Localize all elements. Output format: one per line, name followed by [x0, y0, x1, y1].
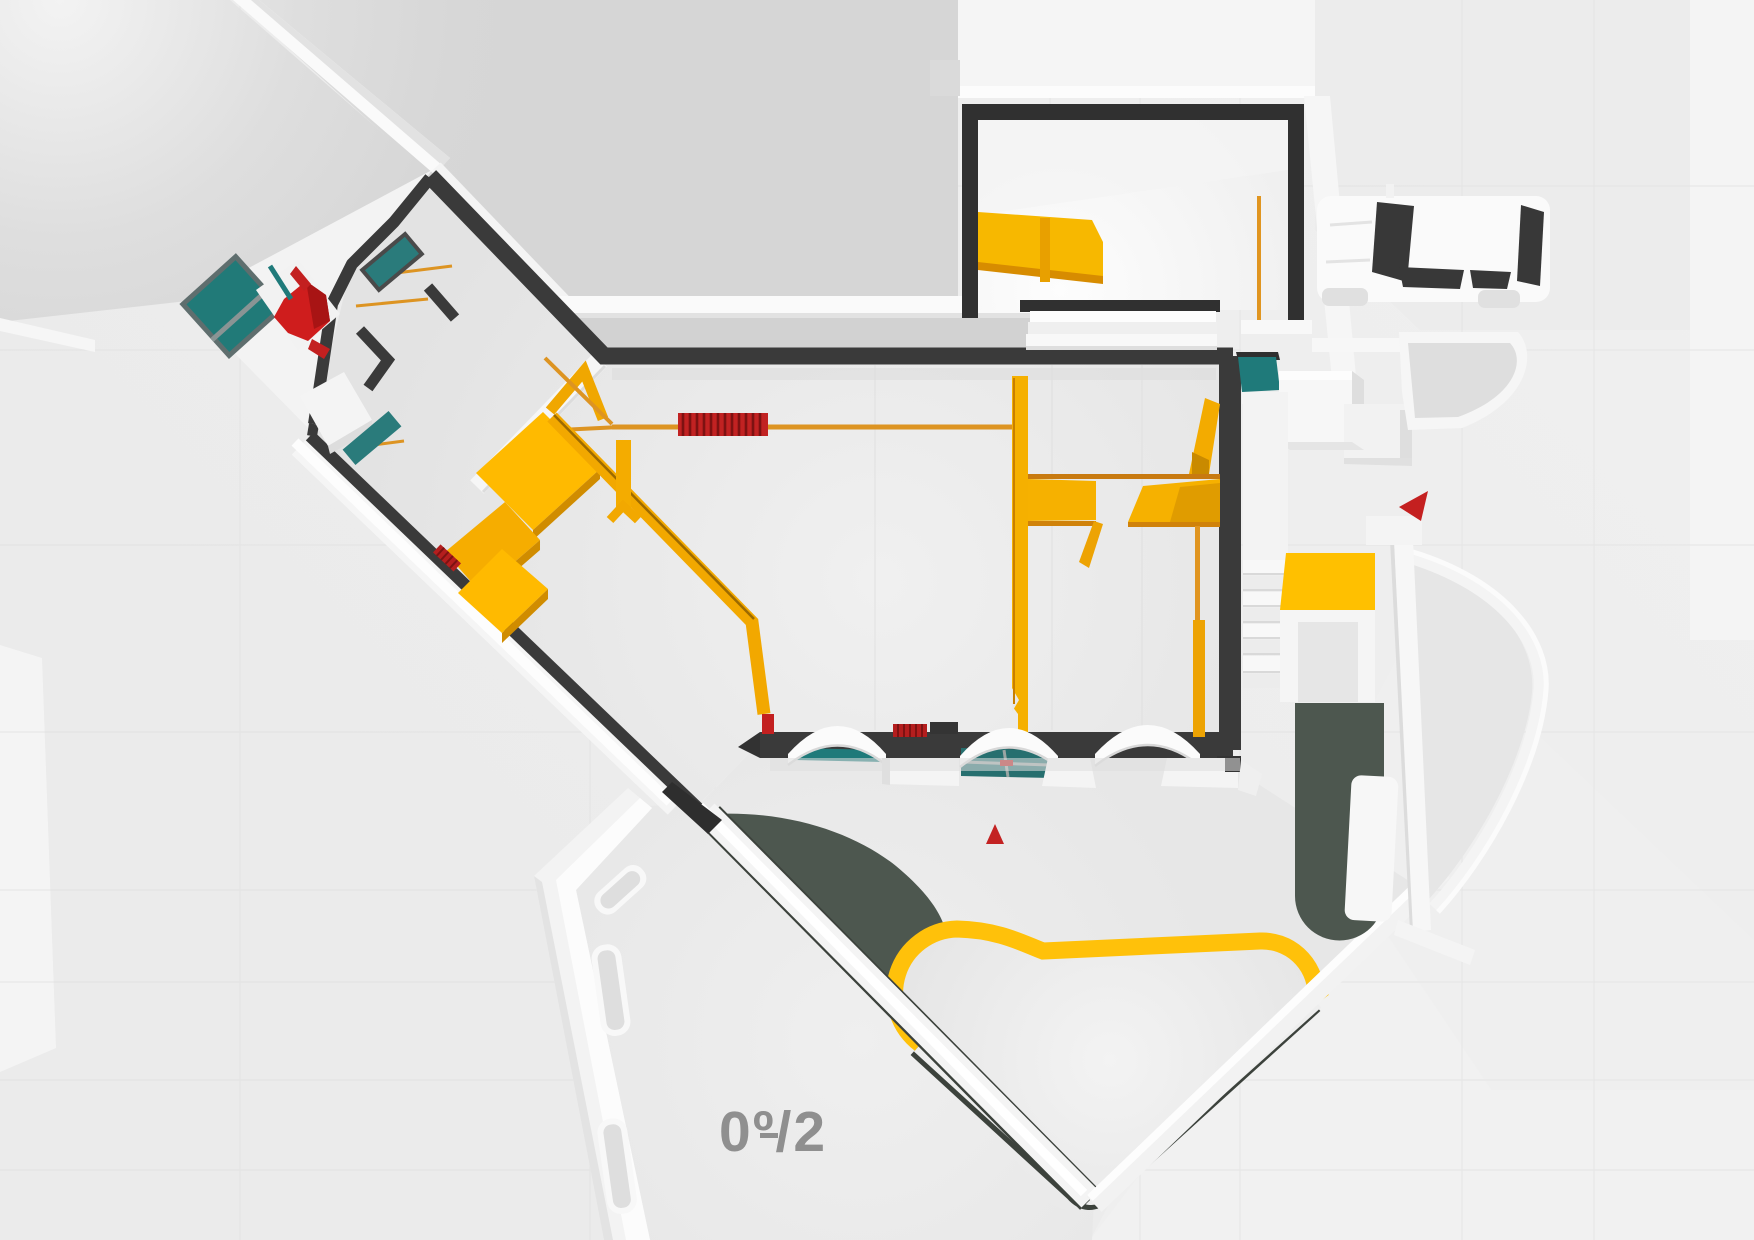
svg-text:0º/2: 0º/2	[719, 1100, 827, 1164]
